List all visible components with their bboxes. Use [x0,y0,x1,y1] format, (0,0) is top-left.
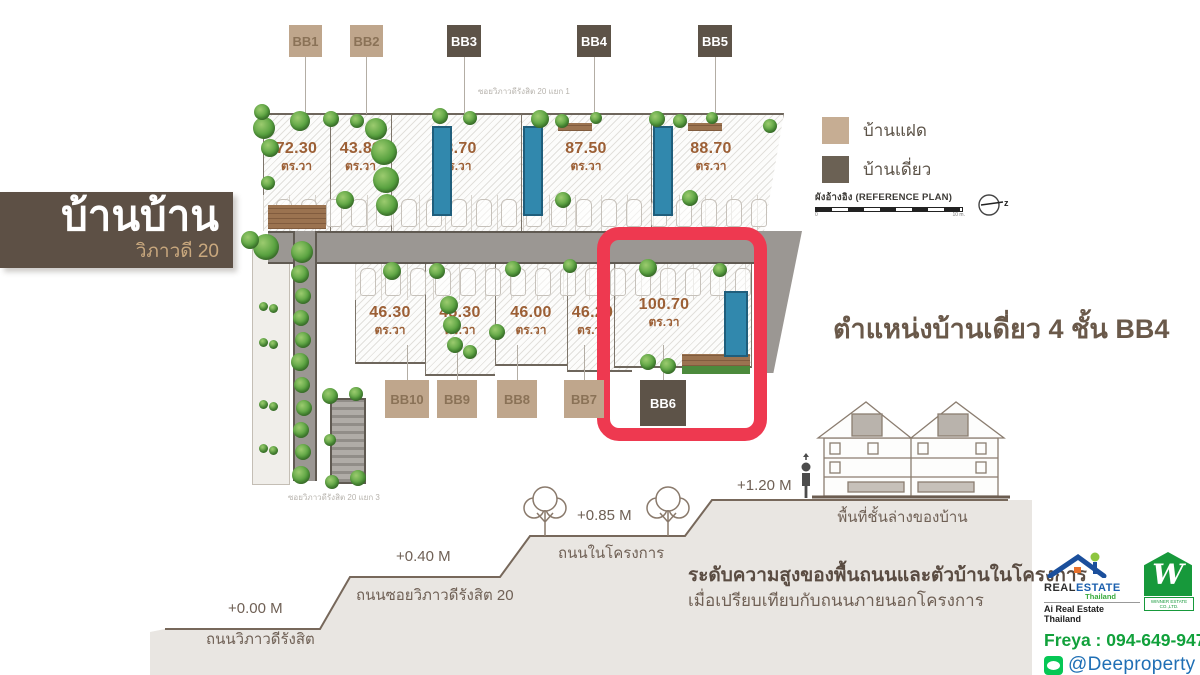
car-icon [701,199,717,227]
level-road-1: ถนนซอยวิภาวดีรังสิต 20 [356,583,514,607]
w-letter: W [1152,558,1183,591]
tree-icon [291,353,309,371]
tree-icon [241,231,259,249]
level-height-2: +0.85 M [577,507,632,524]
area-value: 46.00 [495,304,567,322]
project-title: บ้านบ้าน [61,194,219,238]
pool [523,126,543,216]
plot-tag-label: BB2 [353,34,379,49]
leader-line [584,345,585,380]
twin-house-swatch [822,117,849,144]
street-label-top: ซอยวิภาวดีรังสิต 20 แยก 1 [478,85,570,98]
elevation-caption-bold: ระดับความสูงของพื้นถนนและตัวบ้านในโครงกา… [688,560,1087,590]
plot-tag-label: BB1 [292,34,318,49]
car-icon [410,268,426,296]
tree-icon [682,190,698,206]
tree-icon [463,111,477,125]
legend-label: บ้านแฝด [863,117,927,144]
tree-icon [649,111,665,127]
plot-tag-bb8: BB8 [497,380,537,418]
tree-icon [350,470,366,486]
level-road-2: ถนนในโครงการ [558,541,664,565]
tree-icon [293,422,309,438]
plot-tag-bb4: BB4 [577,25,611,57]
scale-numbers: 0 10 m. [815,212,965,218]
w-company-name: WINNER ESTATE CO.,LTD. [1144,597,1194,611]
pool [432,126,452,216]
plot-area-bb8: 46.00ตร.วา [495,304,567,340]
tree-icon [292,466,310,484]
plot-tag-bb10: BB10 [385,380,429,418]
pool [653,126,673,216]
tree-icon [590,112,602,124]
plot-tag-label: BB4 [581,34,607,49]
tree-icon [294,377,310,393]
plot-tag-label: BB6 [650,396,676,411]
plot-area-bb3: 88.70ตร.วา [391,140,521,176]
headline: ตำแหน่งบ้านเดี่ยว 4 ชั้น BB4 [833,307,1183,350]
tree-icon [269,402,278,411]
tree-icon [447,337,463,353]
tree-icon [563,259,577,273]
plot-tag-bb6: BB6 [640,380,686,426]
tree-icon [429,263,445,279]
scale-end: 10 m. [952,212,965,218]
line-icon [1044,656,1063,675]
level-road-0: ถนนวิภาวดีรังสิต [206,627,315,651]
tree-icon [505,261,521,277]
brand-real: REAL [1044,582,1076,594]
car-icon [501,199,517,227]
elevation-caption: เมื่อเปรียบเทียบกับถนนภายนอกโครงการ [688,587,984,614]
area-value: 46.30 [355,304,425,322]
roof-icon [1044,552,1114,578]
wood-deck [268,205,326,229]
tree-icon [489,324,505,340]
leader-line [305,57,306,114]
plot-tag-bb2: BB2 [350,25,383,57]
plot-tag-bb7: BB7 [564,380,604,418]
tree-icon [259,302,268,311]
plot-tag-bb1: BB1 [289,25,322,57]
level-height-0: +0.00 M [228,600,283,617]
tree-icon [440,296,458,314]
tree-icon [295,332,311,348]
car-icon [360,268,376,296]
tree-icon [254,104,270,120]
plot-tag-label: BB5 [702,34,728,49]
tree-icon [295,444,311,460]
tree-icon [673,114,687,128]
legend-row-twin: บ้านแฝด [822,117,931,144]
leader-line [594,57,595,114]
tree-icon [349,387,363,401]
winner-estate-logo: W WINNER ESTATE CO.,LTD. [1144,552,1194,611]
tree-icon [383,262,401,280]
tree-icon [323,111,339,127]
tree-icon [291,265,309,283]
car-icon [485,268,501,296]
line-contact: @Deeproperty [1044,654,1196,675]
leader-line [715,57,716,114]
planter [688,123,722,131]
car-icon [460,268,476,296]
tree-icon [322,388,338,404]
street-label-bottom: ซอยวิภาวดีรังสิต 20 แยก 3 [288,491,380,504]
plot-area-bb10: 46.30ตร.วา [355,304,425,340]
logos: REALESTATE Thailand Ai Real Estate Thail… [1044,552,1196,624]
tree-icon [324,434,336,446]
tree-icon [336,191,354,209]
detached-house-swatch [822,156,849,183]
car-icon [726,199,742,227]
tree-icon [443,316,461,334]
agent-phone: Freya : 094-649-9478 [1044,630,1196,651]
leader-line [464,57,465,114]
house-elevation-icon [812,402,1010,497]
area-unit: ตร.วา [263,157,330,176]
level-height-1: +0.40 M [396,548,451,565]
plot-tag-label: BB3 [451,34,477,49]
tree-icon [376,194,398,216]
tree-icon [259,444,268,453]
tree-icon [261,176,275,190]
level-height-3: +1.20 M [737,477,792,494]
tree-icon [325,475,339,489]
car-icon [626,199,642,227]
agent-branding: REALESTATE Thailand Ai Real Estate Thail… [1044,552,1196,675]
scale-start: 0 [815,212,818,218]
tree-icon [293,310,309,326]
tree-icon [365,118,387,140]
tree-icon [259,400,268,409]
car-icon [751,199,767,227]
car-icon [401,199,417,227]
area-value: 88.70 [391,140,521,158]
plot-tag-bb3: BB3 [447,25,481,57]
car-icon [601,199,617,227]
ai-realestate-logo: REALESTATE Thailand Ai Real Estate Thail… [1044,552,1140,624]
tree-icon [463,345,477,359]
project-subtitle: วิภาวดี 20 [136,236,219,266]
tree-icon [253,117,275,139]
plot-tag-bb9: BB9 [437,380,477,418]
car-icon [451,199,467,227]
project-banner: บ้านบ้าน วิภาวดี 20 [0,192,233,268]
brand-thailand: Thailand [1044,593,1116,600]
tree-icon [290,111,310,131]
area-unit: ตร.วา [495,321,567,340]
tree-icon [763,119,777,133]
plot-tag-label: BB10 [390,392,423,407]
plot-tag-label: BB9 [444,392,470,407]
legend-label: บ้านเดี่ยว [863,156,931,183]
plot-tag-label: BB7 [571,392,597,407]
tree-icon [350,114,364,128]
area-value: 45.30 [425,304,495,322]
plot-tag-label: BB8 [504,392,530,407]
slide: บ้านบ้าน วิภาวดี 20 ซอยวิภาวดีรังสิต 20 … [0,0,1200,675]
w-house-icon: W [1144,552,1192,596]
tree-icon [371,139,397,165]
brand-subtitle: Ai Real Estate Thailand [1044,602,1140,624]
tree-icon [555,114,569,128]
plot-tag-bb5: BB5 [698,25,732,57]
compass-icon: z [977,192,1011,218]
leader-line [366,57,367,114]
car-icon [476,199,492,227]
area-unit: ตร.วา [355,321,425,340]
tree-icon [295,288,311,304]
car-icon [535,268,551,296]
car-icon [576,199,592,227]
level-road-3: พื้นที่ชั้นล่างของบ้าน [795,505,1010,529]
tree-icon [269,304,278,313]
compass-letter: z [1004,198,1009,208]
tree-icon [261,139,279,157]
leader-line [407,345,408,380]
legend: บ้านแฝด บ้านเดี่ยว [822,117,931,195]
tree-icon [296,400,312,416]
area-unit: ตร.วา [391,157,521,176]
tree-icon [259,338,268,347]
tree-icon [373,167,399,193]
tree-icon [432,108,448,124]
reference-plan: ผังอ้างอิง (REFERENCE PLAN) 0 10 m. z [815,190,1015,218]
leader-line [517,345,518,380]
tree-icon [555,192,571,208]
legend-row-detached: บ้านเดี่ยว [822,156,931,183]
tree-icon [291,241,313,263]
tree-icon [706,112,718,124]
line-account: @Deeproperty [1068,654,1195,675]
tree-icon [269,340,278,349]
person-icon [802,453,811,498]
tree-icon [269,446,278,455]
tree-icon [531,110,549,128]
